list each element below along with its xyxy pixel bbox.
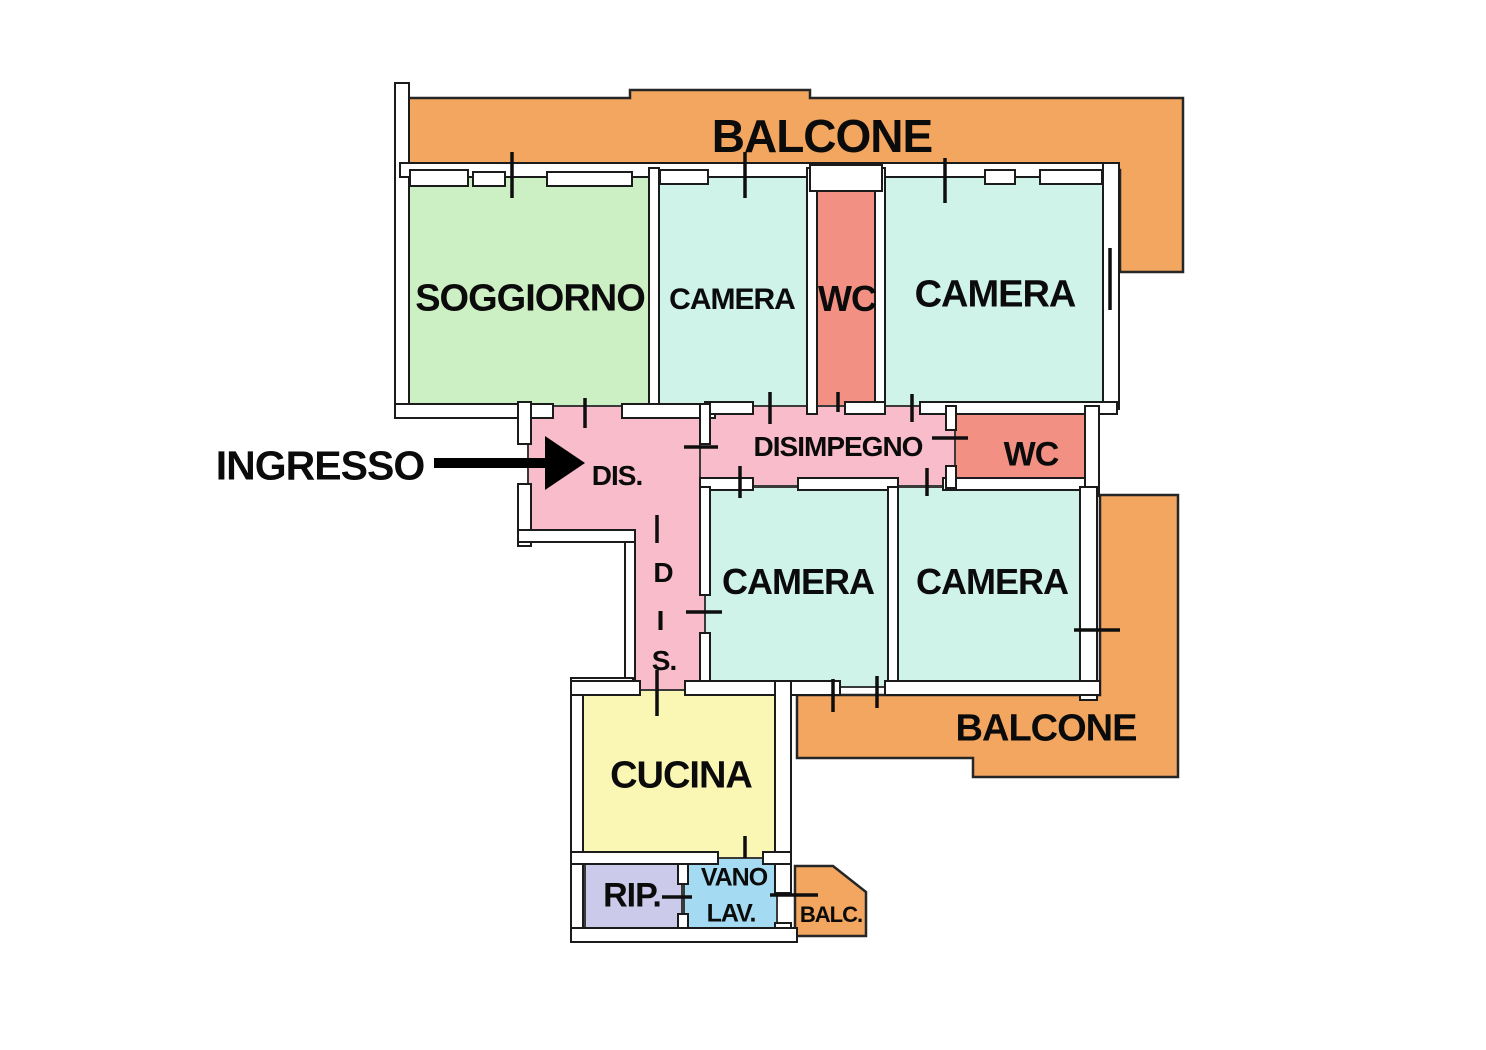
camera-top-left-label: CAMERA <box>669 283 795 317</box>
disimpegno-label: DISIMPEGNO <box>754 431 923 463</box>
dis-vertical-letter-i: I <box>657 605 664 637</box>
rip-label: RIP. <box>603 877 661 916</box>
balc-small-label: BALC. <box>800 902 862 928</box>
ingresso-label: INGRESSO <box>216 443 424 490</box>
vano-lav-label-line2: LAV. <box>707 900 756 929</box>
camera-top-right-label: CAMERA <box>915 274 1076 317</box>
balcony-right-label: BALCONE <box>956 708 1137 751</box>
dis-vertical-letter-d: D <box>653 557 672 589</box>
cucina-label: CUCINA <box>610 755 752 798</box>
vano-lav-label-line1: VANO <box>701 864 767 893</box>
floor-plan-canvas: BALCONE SOGGIORNO CAMERA WC CAMERA INGRE… <box>0 0 1486 1050</box>
dis-vertical-letter-s: S. <box>652 645 676 677</box>
dis-label: DIS. <box>592 460 642 492</box>
camera-mid-left-label: CAMERA <box>722 561 874 603</box>
balcony-top-label: BALCONE <box>712 109 932 163</box>
soggiorno-label: SOGGIORNO <box>415 278 645 321</box>
camera-mid-right-label: CAMERA <box>916 561 1068 603</box>
wc-mid-label: WC <box>1004 436 1059 475</box>
wc-top-label: WC <box>818 278 876 320</box>
